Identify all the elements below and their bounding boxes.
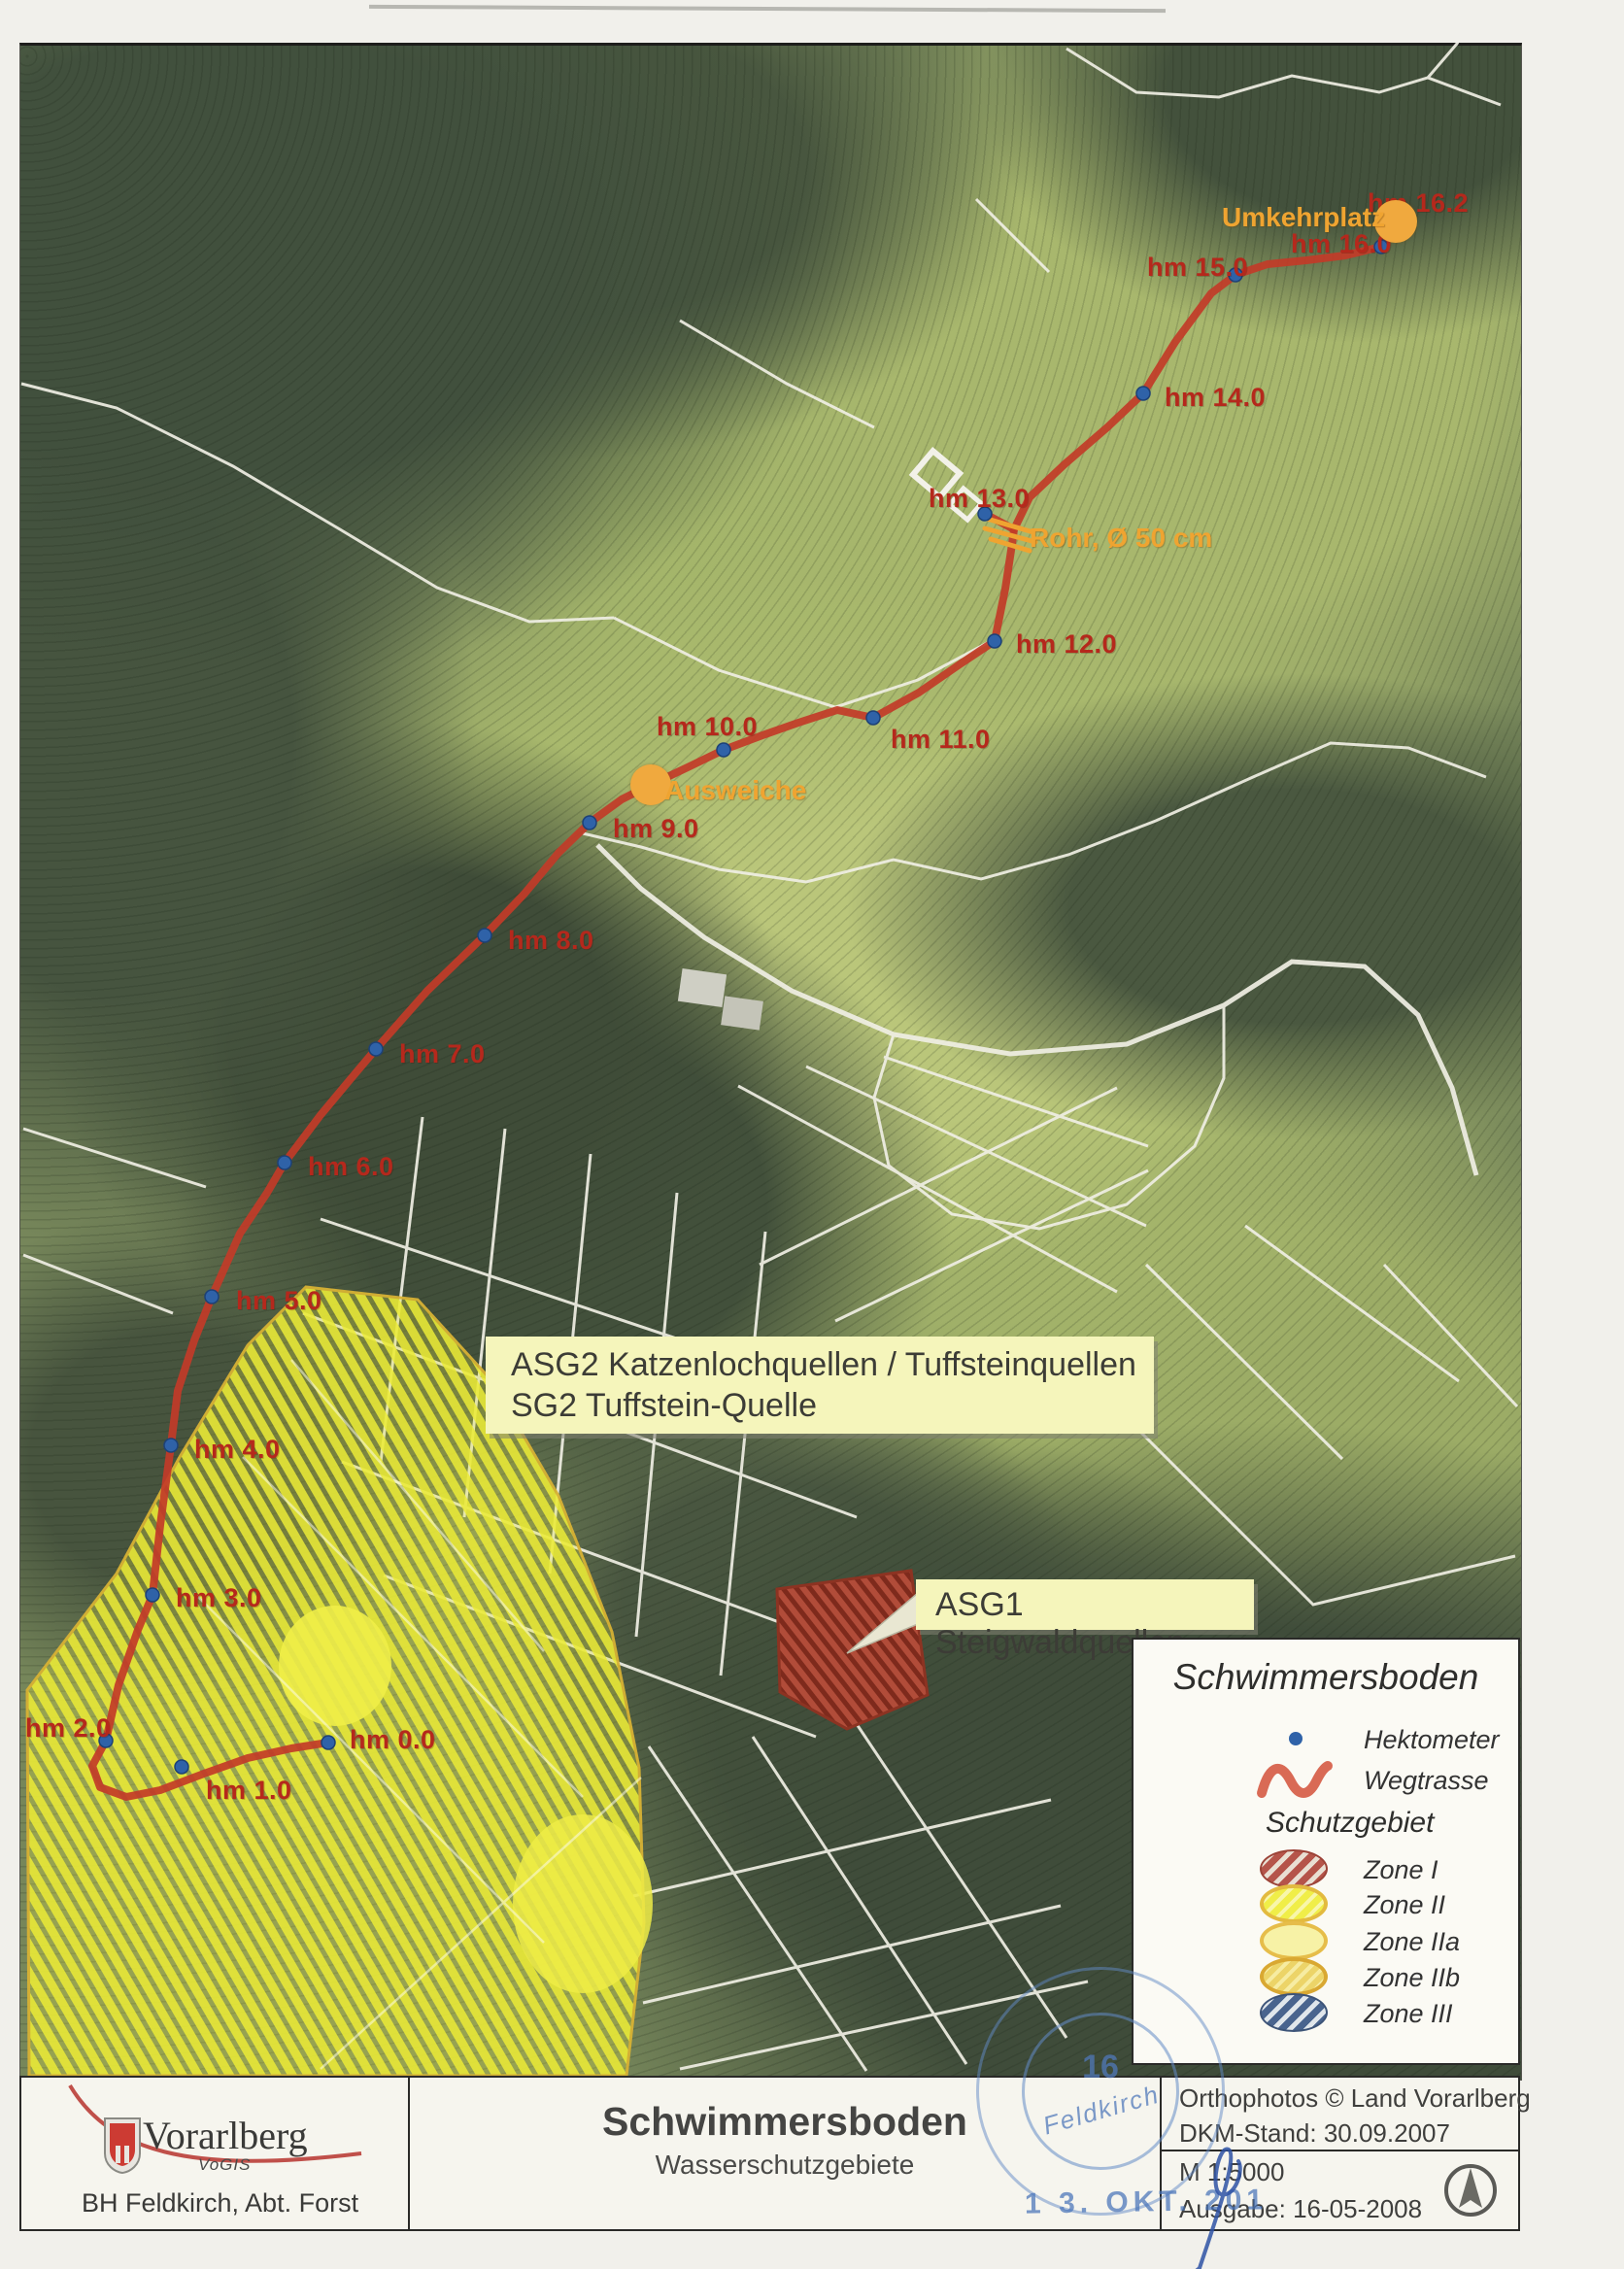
zone3-swatch — [1260, 1993, 1328, 2032]
scanned-map-page: hm 0.0hm 1.0hm 2.0hm 3.0hm 4.0hm 5.0hm 6… — [0, 0, 1624, 2269]
asg2-line2: SG2 Tuffstein-Quelle — [511, 1385, 1154, 1426]
department: BH Feldkirch, Abt. Forst — [82, 2188, 358, 2218]
scan-artifact-line — [369, 5, 1166, 13]
credit-line1: Orthophotos © Land Vorarlberg — [1179, 2083, 1531, 2114]
asg2-line1: ASG2 Katzenlochquellen / Tuffsteinquelle… — [511, 1344, 1154, 1385]
hektometer-label: Hektometer — [1364, 1725, 1500, 1755]
north-arrow-icon — [1441, 2161, 1500, 2219]
hektometer-dot-icon — [1289, 1732, 1303, 1745]
legend-title: Schwimmersboden — [1133, 1657, 1518, 1698]
zone3-label: Zone III — [1364, 1999, 1453, 2029]
stamp-city: Feldkirch — [1036, 2079, 1167, 2143]
wegtrasse-label: Wegtrasse — [1364, 1766, 1489, 1796]
zone2a-label: Zone IIa — [1364, 1927, 1460, 1957]
asg1-annotation-box: ASG1 Steigwaldquellen — [916, 1579, 1254, 1630]
official-stamp: 16 Feldkirch — [1022, 2013, 1179, 2170]
asg2-annotation-box: ASG2 Katzenlochquellen / Tuffsteinquelle… — [486, 1337, 1154, 1434]
zone1-swatch — [1260, 1849, 1328, 1888]
schutzgebiet-heading: Schutzgebiet — [1266, 1807, 1434, 1840]
zone2-label: Zone II — [1364, 1890, 1445, 1920]
pen-signature — [1170, 2132, 1297, 2269]
zone2a-swatch — [1260, 1921, 1328, 1960]
zone1-label: Zone I — [1364, 1855, 1438, 1885]
zone2b-label: Zone IIb — [1364, 1963, 1460, 1993]
wegtrasse-icon — [1254, 1752, 1336, 1803]
legend-box: Schwimmersboden Hektometer Wegtrasse Sch… — [1132, 1638, 1520, 2065]
org-name: Vorarlberg — [143, 2113, 308, 2158]
org-sub: VoGIS — [198, 2155, 251, 2175]
zone2-swatch — [1260, 1884, 1328, 1923]
vorarlberg-coat-of-arms — [103, 2117, 142, 2175]
zone2b-swatch — [1260, 1957, 1328, 1996]
